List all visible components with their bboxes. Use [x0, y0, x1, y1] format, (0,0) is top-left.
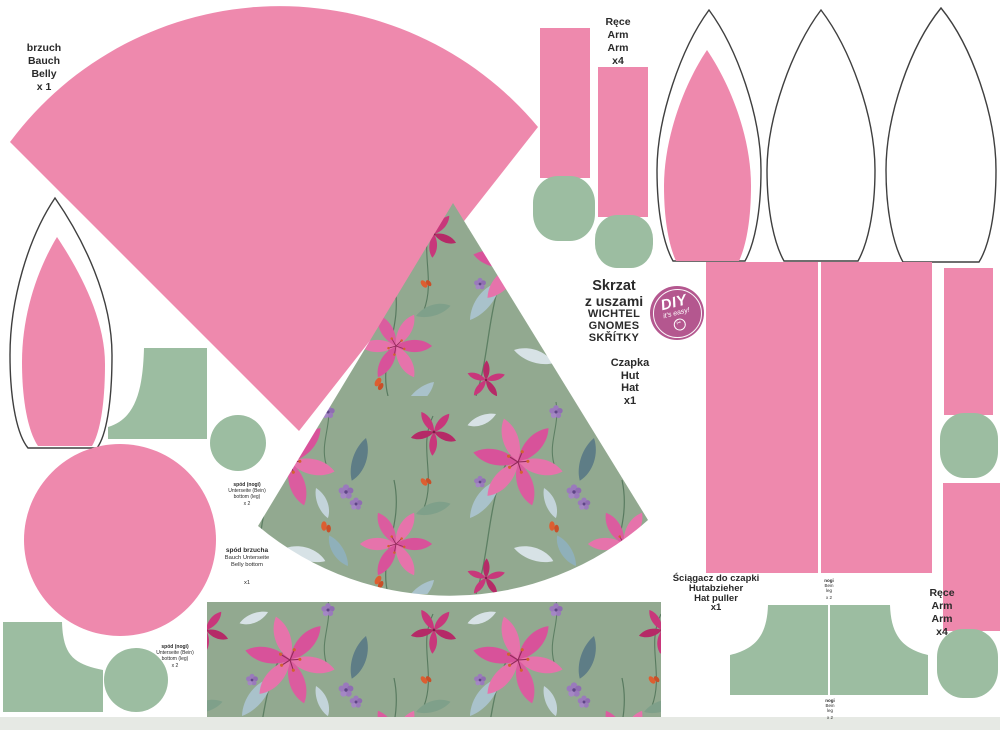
label-line: Belly	[8, 68, 80, 81]
piece-leg-bottom-circle-1	[210, 415, 266, 471]
label-line: Belly bottom	[210, 562, 284, 569]
label-line: x1	[662, 603, 770, 613]
label-arms-right: Ręce Arm Arm x4	[908, 587, 976, 639]
piece-boot-bottom-left	[3, 622, 103, 712]
label-line: brzuch	[8, 42, 80, 55]
label-line: x 2	[142, 664, 208, 670]
piece-arm-1-hand	[533, 176, 595, 241]
piece-arm-2-hand	[595, 215, 653, 268]
label-line: x4	[586, 55, 650, 68]
label-line: spód brzucha	[210, 547, 284, 555]
label-line: Hut	[602, 370, 658, 383]
piece-arm-3-hand	[940, 413, 998, 478]
piece-hat-puller-band	[207, 602, 661, 717]
label-belly-bottom: spód brzucha Bauch Unterseite Belly bott…	[210, 547, 284, 587]
label-hat-puller: Ściągacz do czapki Hutabzieher Hat pulle…	[662, 574, 770, 613]
label-line: x 1	[8, 81, 80, 94]
piece-leg-right	[821, 262, 932, 573]
label-line: Arm	[586, 29, 650, 42]
piece-belly-bottom-circle	[24, 444, 216, 636]
label-line: Hat	[602, 382, 658, 395]
label-line: leg	[807, 708, 853, 713]
title-line: z uszami	[568, 294, 660, 308]
title-line: GNOMES	[568, 320, 660, 332]
label-line: Arm	[586, 42, 650, 55]
pattern-pieces-canvas	[0, 0, 1000, 730]
label-line: Bauch Unterseite	[210, 555, 284, 562]
piece-boot-bottom-right-1	[730, 605, 828, 695]
diy-badge: DIY it's easy! ✂	[650, 286, 704, 340]
label-line: Ręce	[908, 587, 976, 600]
label-line: Arm	[908, 613, 976, 626]
label-line: Arm	[908, 600, 976, 613]
piece-arm-4-hand	[937, 629, 998, 698]
piece-ear-c-outer	[886, 8, 996, 262]
title-line: WICHTEL	[568, 308, 660, 320]
title-line: Skrzat	[568, 279, 660, 294]
label-line: Ręce	[586, 16, 650, 29]
label-line: x 2	[807, 715, 853, 720]
piece-ear-b-outer	[767, 10, 875, 261]
sewing-pattern-panel: brzuch Bauch Belly x 1 Ręce Arm Arm x4 S…	[0, 0, 1000, 730]
label-line: x1	[602, 395, 658, 408]
label-belly: brzuch Bauch Belly x 1	[8, 42, 80, 94]
panel-title: Skrzat z uszami WICHTEL GNOMES SKŘÍTKY	[568, 279, 660, 344]
label-line: bottom (leg)	[142, 657, 208, 663]
label-leg-bottom-2: spód (nogi) Unterseite (Bein) bottom (le…	[142, 645, 208, 670]
label-line: x 2	[806, 595, 852, 600]
scissors-icon: ✂	[672, 317, 687, 332]
piece-boot-top-left	[108, 348, 207, 439]
piece-arm-2	[598, 67, 648, 217]
label-line: x 2	[214, 502, 280, 508]
diy-badge-content: DIY it's easy! ✂	[660, 293, 695, 333]
label-hat: Czapka Hut Hat x1	[602, 357, 658, 407]
label-arms-top: Ręce Arm Arm x4	[586, 16, 650, 68]
label-line: x4	[908, 626, 976, 639]
title-line: SKŘÍTKY	[568, 332, 660, 344]
label-line: x1	[210, 580, 284, 587]
label-line: Czapka	[602, 357, 658, 370]
piece-arm-1	[540, 28, 590, 178]
label-leg-bottom-1: spód (nogi) Unterseite (Bein) bottom (le…	[214, 483, 280, 508]
label-line: Bauch	[8, 55, 80, 68]
piece-arm-3	[944, 268, 993, 415]
label-legs-bottom: nogi Bein leg x 2	[807, 698, 853, 720]
label-line: bottom (leg)	[214, 495, 280, 501]
label-legs-top: nogi Bein leg x 2	[806, 578, 852, 600]
label-line: leg	[806, 588, 852, 593]
piece-leg-left	[706, 262, 818, 573]
